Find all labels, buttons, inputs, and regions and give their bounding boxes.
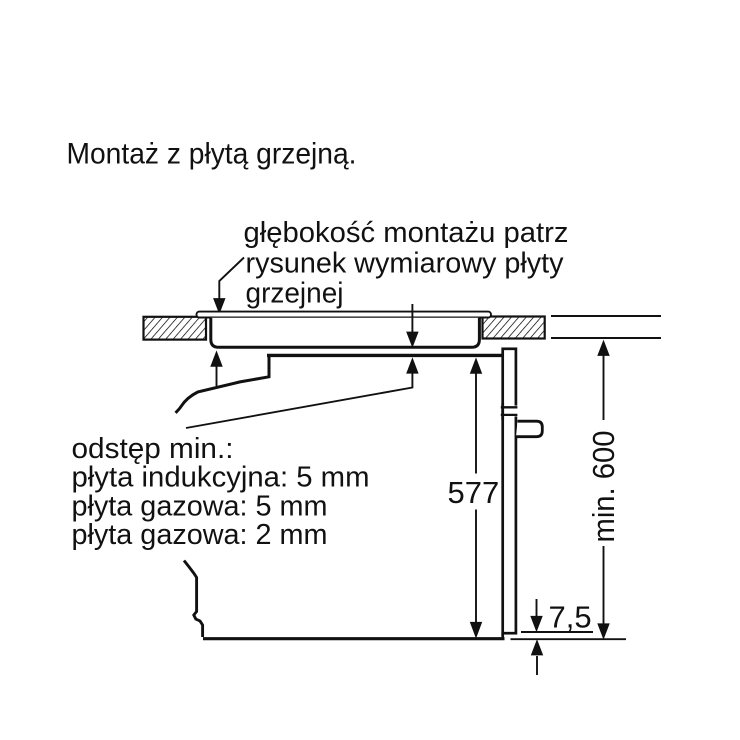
svg-text:grzejnej: grzejnej [246, 278, 344, 310]
svg-text:rysunek wymiarowy płyty: rysunek wymiarowy płyty [246, 247, 564, 279]
svg-text:odstęp min.:: odstęp min.: [72, 433, 234, 465]
svg-text:min. 600: min. 600 [586, 431, 621, 543]
svg-text:płyta indukcyjna: 5 mm: płyta indukcyjna: 5 mm [72, 462, 370, 494]
svg-text:577: 577 [448, 475, 500, 510]
svg-text:7,5: 7,5 [549, 600, 592, 635]
svg-text:płyta gazowa: 2 mm: płyta gazowa: 2 mm [72, 519, 328, 551]
svg-text:płyta gazowa: 5 mm: płyta gazowa: 5 mm [72, 490, 328, 522]
svg-text:głębokość montażu patrz: głębokość montażu patrz [244, 217, 569, 249]
svg-text:Montaż z płytą grzejną.: Montaż z płytą grzejną. [67, 138, 357, 171]
